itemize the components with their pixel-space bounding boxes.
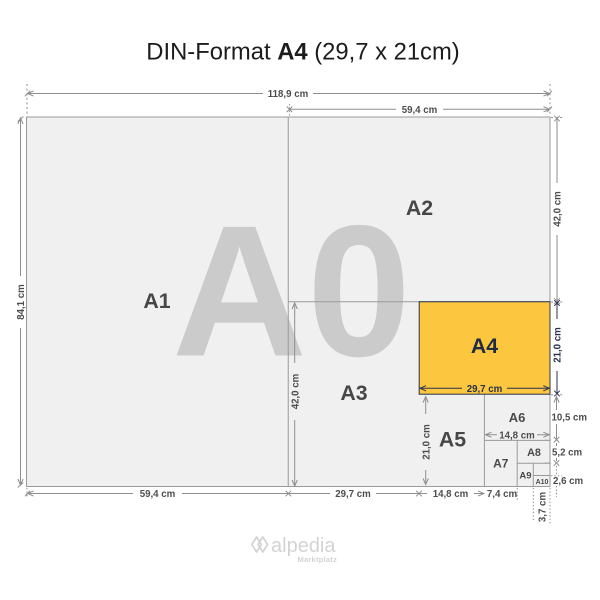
svg-text:84,1 cm: 84,1 cm [16,284,27,320]
svg-text:7,4 cm: 7,4 cm [487,489,518,500]
svg-text:A10: A10 [536,479,549,486]
svg-text:A8: A8 [527,447,541,459]
svg-text:21,0 cm: 21,0 cm [553,327,564,363]
svg-text:14,8 cm: 14,8 cm [433,489,469,500]
svg-text:29,7 cm: 29,7 cm [335,489,371,500]
svg-text:14,8 cm: 14,8 cm [499,430,535,441]
svg-text:A1: A1 [143,289,170,313]
svg-text:A4: A4 [471,334,498,358]
svg-text:A3: A3 [340,381,367,405]
svg-text:3,7 cm: 3,7 cm [537,492,548,523]
svg-text:A2: A2 [406,196,433,220]
svg-text:42,0 cm: 42,0 cm [290,373,301,409]
svg-text:A0: A0 [172,187,411,396]
svg-text:DIN-Format A4 (29,7 x 21cm): DIN-Format A4 (29,7 x 21cm) [146,39,459,66]
svg-text:alpedia: alpedia [271,535,336,557]
svg-text:A6: A6 [509,410,526,425]
svg-text:5,2 cm: 5,2 cm [552,448,583,459]
svg-text:59,4 cm: 59,4 cm [402,105,438,116]
svg-text:42,0 cm: 42,0 cm [553,191,564,227]
svg-text:Marktplatz: Marktplatz [297,555,337,564]
svg-text:118,9 cm: 118,9 cm [268,89,309,100]
svg-text:10,5 cm: 10,5 cm [552,413,588,424]
svg-text:A7: A7 [493,456,509,470]
svg-text:A5: A5 [439,427,466,451]
svg-text:29,7 cm: 29,7 cm [467,384,503,395]
svg-text:59,4 cm: 59,4 cm [140,489,176,500]
svg-text:2,6 cm: 2,6 cm [553,476,584,487]
svg-text:A9: A9 [519,470,531,481]
svg-text:21,0 cm: 21,0 cm [421,424,432,460]
